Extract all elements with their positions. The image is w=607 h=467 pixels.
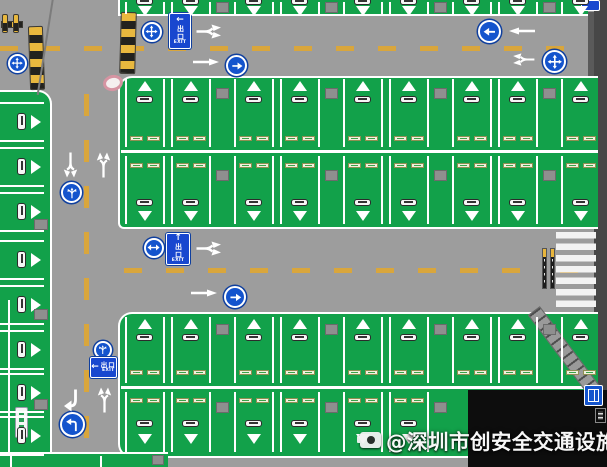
wheel-stop [239,398,252,403]
wheel-stop [256,398,269,403]
stall-line [0,230,44,232]
stall-line [343,2,345,14]
wheel-stop [474,136,487,141]
stall-line [234,2,236,14]
two-way-arrow-icon [147,241,160,254]
stall-line [498,2,500,14]
fork-up-road-marking [97,386,112,414]
stall-number-plate [17,113,26,130]
stall-arrow-icon [574,211,588,221]
stall-line [452,317,454,383]
stall-number-plate [245,0,262,5]
stall-line [561,79,563,147]
stall-number-plate [463,334,480,341]
exit-sign-english: EXIT [102,369,115,374]
stall-line [171,392,173,452]
left-turn-road-marking [62,388,80,414]
stall-line [125,392,127,452]
warning-bollard [542,248,547,289]
wheel-stop [193,370,206,375]
stall-arrow-icon [247,434,261,444]
pillar [325,324,338,335]
fork-arrow-sign [61,182,82,203]
stall-line [318,392,320,452]
stall-arrow-icon [511,211,525,221]
wheel-stop [394,370,407,375]
stall-number-plate [182,96,199,103]
watermark-text: @深圳市创安全交通设施厂家 [386,425,607,455]
pillar [216,2,229,13]
stall-number-plate [291,420,308,427]
wheel-stop [193,163,206,168]
wheel-stop [365,398,378,403]
wheel-stop [520,163,533,168]
stall-line [280,156,282,224]
stall-line [163,156,165,224]
stall-arrow-icon [138,319,152,329]
wheel-stop [147,163,160,168]
entry-barrier-post [2,14,8,33]
wheel-stop [285,398,298,403]
stall-number-plate [136,334,153,341]
stall-arrow-icon [402,81,416,91]
stall-line [561,317,563,383]
wheel-stop [285,370,298,375]
wheel-stop [411,398,424,403]
wheel-stop [394,136,407,141]
stall-number-plate [17,251,26,268]
stall-number-plate [463,0,480,5]
right-arrow-icon [230,59,244,73]
stall-line [318,317,320,383]
right-arrow-sign [224,286,246,308]
stall-arrow-icon [402,211,416,221]
stall-number-plate [354,199,371,206]
stall-line [343,392,345,452]
exit-arrow-icon: ← [176,16,184,25]
wheel-stop [457,136,470,141]
stall-arrow-icon [31,386,41,400]
wheel-stop [176,136,189,141]
stall-line [452,156,454,224]
stall-line [163,317,165,383]
stall-line [452,2,454,14]
stall-line [10,456,12,467]
stall-number-plate [136,420,153,427]
stall-line [125,317,127,383]
wheel-stop [411,163,424,168]
stall-arrow-icon [247,6,261,16]
pillar [325,402,338,413]
pillar [543,2,556,13]
stall-arrow-icon [293,319,307,329]
stall-arrow-icon [184,211,198,221]
stall-line [490,2,492,14]
block-a-midline [121,150,598,153]
stall-number-plate [17,296,26,313]
stall-number-plate [509,199,526,206]
stall-line [381,2,383,14]
stall-number-plate [17,341,26,358]
stall-number-plate [509,96,526,103]
stall-line [0,330,44,332]
left-turn-arrow-icon [64,416,81,433]
stall-arrow-icon [465,211,479,221]
wheel-stop [457,163,470,168]
stall-line [427,79,429,147]
wheel-stop [193,136,206,141]
wheel-stop [365,163,378,168]
stall-arrow-icon [138,81,152,91]
bollard-cap [551,249,554,257]
stall-line [343,317,345,383]
straight-right-road-marking [190,289,218,297]
wheel-stop [193,398,206,403]
stall-line [490,79,492,147]
stall-line [100,456,102,467]
wheel-stop [176,163,189,168]
stall-line [209,156,211,224]
stall-line [498,317,500,383]
stall-line [125,156,127,224]
pillar [216,170,229,181]
wheel-stop [394,163,407,168]
wheel-stop [520,370,533,375]
stall-line [171,79,173,147]
stall-arrow-icon [138,434,152,444]
wheel-stop [256,136,269,141]
entry-barrier-post [13,14,19,33]
pillar [543,170,556,181]
stall-number-plate [354,96,371,103]
stall-line [0,368,44,370]
stall-line [318,156,320,224]
parking-lot-plan: ← 出口 EXIT ↑ 出口 EXIT ← 出口 EXIT @深圳市创安全交通设… [0,0,607,467]
stall-line [280,2,282,14]
stall-number-plate [400,96,417,103]
stall-line [561,156,563,224]
stall-number-plate [245,334,262,341]
stall-arrow-icon [574,6,588,16]
stall-number-plate [17,427,26,444]
stall-line [536,2,538,14]
stall-number-plate [182,199,199,206]
wheel-stop [302,398,315,403]
stall-line [163,2,165,14]
wheel-stop [566,163,579,168]
wheel-stop [302,136,315,141]
stall-line [163,79,165,147]
stall-number-plate [245,199,262,206]
stall-number-plate [291,199,308,206]
stall-number-plate [572,199,589,206]
wheel-stop [302,163,315,168]
stall-line [490,156,492,224]
left-arrow-sign [478,20,501,43]
wheel-stop [285,136,298,141]
stall-line [171,2,173,14]
center-line-left-road [84,94,89,446]
stall-line [0,192,44,194]
stall-line [343,79,345,147]
four-way-arrow-sign [142,22,162,42]
stall-line [209,317,211,383]
stall-arrow-icon [293,81,307,91]
small-dark-sign [595,408,606,423]
pillar [434,88,447,99]
wheel-stop [239,163,252,168]
wheel-stop [256,163,269,168]
stall-line [427,2,429,14]
pillar [543,324,556,335]
stall-arrow-icon [293,211,307,221]
stall-line [125,2,127,14]
exit-sign-english: EXIT [172,259,185,264]
stall-arrow-icon [247,81,261,91]
left-strip-inner-line [8,300,10,467]
stall-line [272,156,274,224]
four-way-arrow-icon [547,54,563,70]
speed-bump-barrier-b [119,12,137,74]
stall-arrow-icon [31,253,41,267]
stall-arrow-icon [31,160,41,174]
right-wall-shadow [588,12,594,76]
stall-line [209,392,211,452]
stall-number-plate [17,203,26,220]
four-way-arrow-sign [8,54,27,73]
stall-line [171,156,173,224]
pillar [34,309,48,320]
wheel-stop [176,398,189,403]
stall-number-plate [136,0,153,5]
wheel-stop [474,163,487,168]
pillar [216,402,229,413]
stall-number-plate [182,0,199,5]
wheel-stop [256,370,269,375]
stall-number-plate [136,96,153,103]
stall-line [318,79,320,147]
stall-line [536,156,538,224]
stall-number-plate [463,199,480,206]
stall-arrow-icon [184,6,198,16]
stall-number-plate [291,0,308,5]
stall-line [452,79,454,147]
stall-line [234,392,236,452]
stall-arrow-icon [465,319,479,329]
exit-sign-chinese: 出口 [177,25,184,41]
stall-line [0,240,44,242]
elevator-sign [584,385,603,406]
stall-arrow-icon [138,6,152,16]
pillar [434,2,447,13]
exit-sign-top: ← 出口 EXIT [169,13,191,49]
right-arrow-icon [228,290,243,305]
stall-number-plate [291,96,308,103]
pillar [325,2,338,13]
stall-line [0,102,44,104]
stall-line [280,392,282,452]
stall-arrow-icon [356,319,370,329]
pillar [434,402,447,413]
straight-left-road-marking [507,27,537,35]
stall-line [272,2,274,14]
exit-sign-text-stack: 出口 EXIT [101,362,116,373]
stall-arrow-icon [247,319,261,329]
zebra-crossing [556,232,596,308]
stall-arrow-icon [356,6,370,16]
pillar [543,88,556,99]
stall-number-plate [572,96,589,103]
left-arrow-icon [482,24,498,40]
fork-left-road-marking [511,53,537,66]
pillar [434,170,447,181]
stall-arrow-icon [465,6,479,16]
stall-line [280,317,282,383]
left-turn-sign [60,412,85,437]
stall-arrow-icon [356,81,370,91]
stall-line [234,79,236,147]
pillar [325,170,338,181]
stall-line [498,156,500,224]
stall-arrow-icon [31,115,41,129]
stall-arrow-icon [465,81,479,91]
stall-arrow-icon [511,6,525,16]
pillar [34,219,48,230]
fork-down-road-marking [63,150,78,180]
stall-line [280,79,282,147]
stall-number-plate [509,0,526,5]
stall-line [0,278,44,280]
stall-line [427,317,429,383]
wheel-stop [130,370,143,375]
straight-right-road-marking [192,58,220,66]
wheel-stop [411,136,424,141]
stall-number-plate [245,96,262,103]
stall-line [0,140,44,142]
wheel-stop [520,136,533,141]
block-b-midline [121,386,598,389]
wheel-stop [348,370,361,375]
stall-number-plate [17,158,26,175]
stall-line [209,79,211,147]
stall-number-plate [291,334,308,341]
wheel-stop [239,370,252,375]
four-way-arrow-sign [543,50,566,73]
stall-arrow-icon [247,211,261,221]
stall-number-plate [182,420,199,427]
stall-line [389,156,391,224]
pillar [216,324,229,335]
exit-sign-chinese: 出口 [175,243,182,259]
stall-line [0,373,44,375]
stall-line [498,79,500,147]
fork-up-road-marking [96,150,111,180]
stall-line [0,323,44,325]
pillar [434,324,447,335]
stall-line [536,317,538,383]
elevator-icon [588,389,599,402]
stall-number-plate [400,0,417,5]
stall-line [163,392,165,452]
wheel-stop [457,370,470,375]
stall-arrow-icon [31,343,41,357]
stall-line [536,79,538,147]
stall-line [234,317,236,383]
wheel-stop [474,370,487,375]
stall-number-plate [354,0,371,5]
fork-arrow-icon [65,186,79,200]
stall-number-plate [136,199,153,206]
stall-line [0,454,44,456]
fork-right-road-marking [195,241,222,256]
stall-arrow-icon [293,434,307,444]
wheel-stop [583,370,596,375]
pillar [216,88,229,99]
wheel-stop [348,398,361,403]
stall-line [0,411,44,413]
watermark: @深圳市创安全交通设施厂家 [360,425,607,455]
wheel-stop [130,136,143,141]
exit-sign-english: EXIT [174,41,187,46]
stall-line [561,2,563,14]
camera-icon [360,432,381,448]
wheel-stop [285,163,298,168]
stall-number-plate [509,334,526,341]
wheel-stop [503,370,516,375]
wheel-stop [130,398,143,403]
pillar [325,88,338,99]
wheel-stop [566,370,579,375]
stall-line [234,156,236,224]
stall-arrow-icon [138,211,152,221]
stall-line [209,2,211,14]
stall-number-plate [463,96,480,103]
wheel-stop [503,163,516,168]
stall-arrow-icon [184,319,198,329]
exit-arrow-icon: ↑ [174,234,182,243]
fork-right-road-marking [195,24,222,39]
stall-arrow-icon [356,211,370,221]
stall-number-plate [182,334,199,341]
stall-number-plate [572,334,589,341]
stall-line [272,317,274,383]
wheel-stop [566,136,579,141]
stall-arrow-icon [511,81,525,91]
four-way-arrow-icon [145,25,158,38]
stall-number-plate [572,0,589,5]
two-way-arrow-sign [144,238,164,258]
stall-arrow-icon [184,81,198,91]
center-line-middle-road [124,268,544,273]
stall-line [272,79,274,147]
bollard-ticks [544,259,545,287]
stall-line [0,416,44,418]
stall-line [389,79,391,147]
fork-arrow-icon [97,344,108,355]
wheel-stop [503,136,516,141]
stall-arrow-icon [574,81,588,91]
stall-number-plate [245,420,262,427]
warning-bollard [550,248,555,289]
stall-line [381,317,383,383]
wheel-stop [348,163,361,168]
exit-sign-middle: ↑ 出口 EXIT [166,233,190,265]
stall-line [0,185,44,187]
wheel-stop [302,370,315,375]
stall-number-plate [400,199,417,206]
stall-number-plate [400,334,417,341]
stall-number-plate [17,384,26,401]
